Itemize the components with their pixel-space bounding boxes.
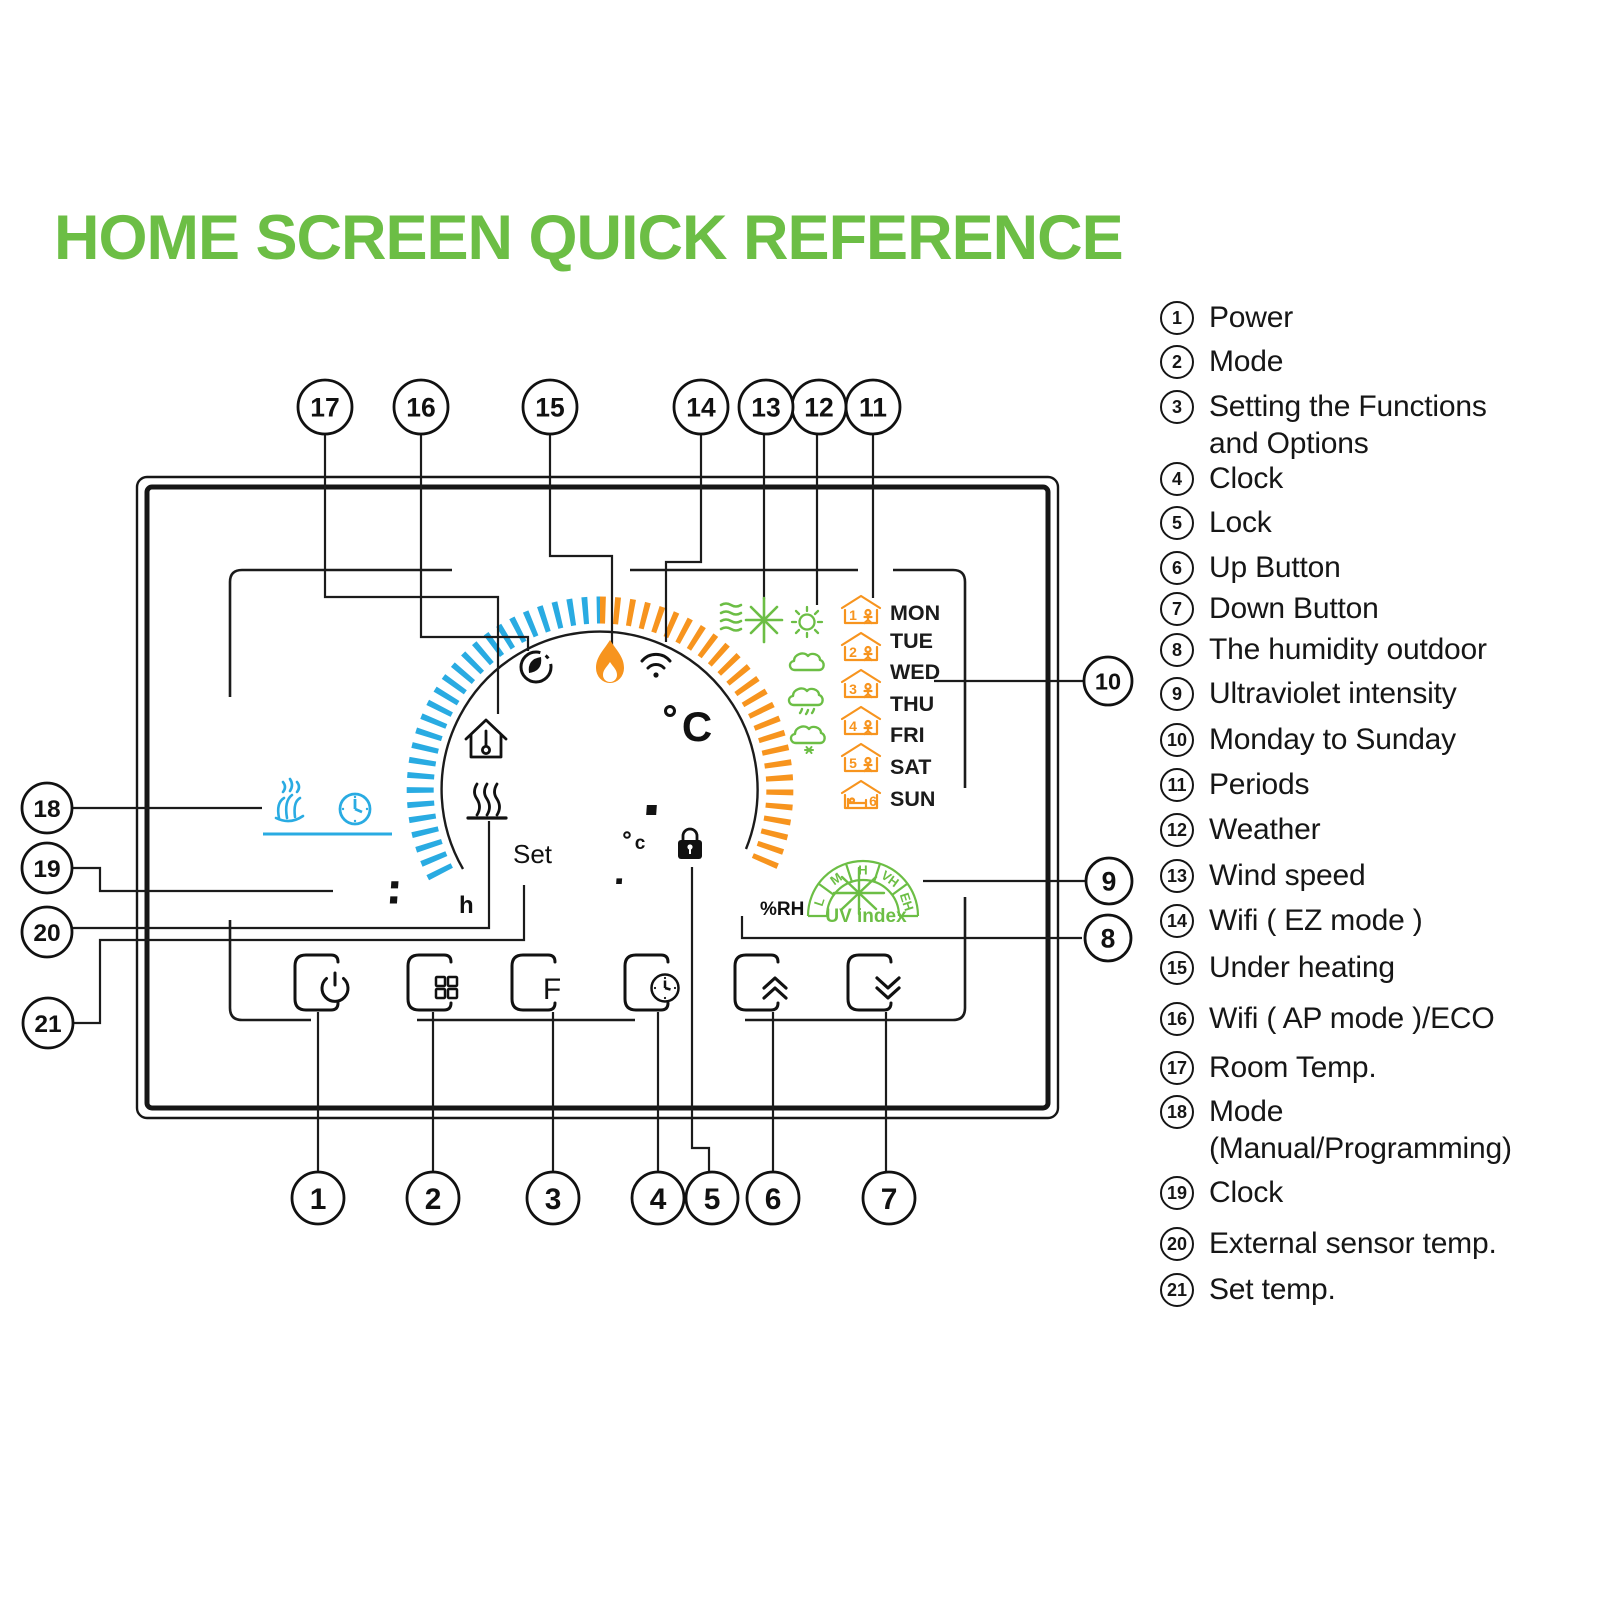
set-temp-fraction [616, 878, 622, 884]
mode-icon [436, 977, 457, 998]
period-house-icon-1: 1 [842, 596, 880, 623]
legend-item-19: 19Clock [1160, 1174, 1283, 1211]
svg-text:9: 9 [1102, 867, 1117, 897]
room-temp-unit: C [666, 703, 713, 750]
callout-8: 8 [1085, 915, 1131, 961]
svg-text:19: 19 [33, 856, 60, 883]
legend-item-12: 12Weather [1160, 811, 1320, 848]
wind-star [746, 598, 782, 642]
callout-4: 4 [632, 1172, 684, 1224]
day-label-TUE: TUE [890, 629, 933, 653]
uv-index-label: UV index [825, 906, 907, 927]
legend-item-9: 9Ultraviolet intensity [1160, 675, 1457, 712]
legend-item-7: 7Down Button [1160, 590, 1379, 627]
sun-icon [792, 607, 822, 637]
callout-9: 9 [1086, 858, 1132, 904]
svg-text:7: 7 [881, 1183, 898, 1216]
svg-text:4: 4 [650, 1183, 667, 1216]
callout-11: 11 [846, 380, 900, 434]
svg-text:5: 5 [704, 1183, 721, 1216]
weekday-labels: MONTUEWEDTHUFRISATSUN [890, 601, 940, 811]
callout-20: 20 [22, 907, 72, 957]
callout-15: 15 [523, 380, 577, 434]
svg-text:14: 14 [686, 393, 716, 423]
period-house-icon-4: 4 [842, 707, 880, 734]
legend-item-16: 16Wifi ( AP mode )/ECO [1160, 1000, 1495, 1037]
legend-item-17: 17Room Temp. [1160, 1049, 1377, 1086]
cloud-icon [790, 654, 824, 670]
rain-cloud-icon [789, 689, 823, 714]
lock-icon [678, 829, 702, 859]
callout-14: 14 [674, 380, 728, 434]
legend-item-2: 2Mode [1160, 343, 1283, 380]
svg-text:20: 20 [33, 920, 60, 947]
legend-item-11: 11Periods [1160, 766, 1309, 803]
heating-flame-icon [596, 640, 624, 683]
svg-text:C: C [682, 703, 712, 750]
manual-hand-icon [276, 779, 303, 821]
svg-text:16: 16 [406, 393, 435, 423]
day-label-MON: MON [890, 601, 940, 625]
legend-item-4: 4Clock [1160, 460, 1283, 497]
svg-text:6: 6 [869, 793, 877, 809]
svg-text:c: c [635, 833, 646, 854]
periods-icons: 123456 [842, 596, 880, 809]
clock-button-icon [652, 975, 679, 1002]
clock-unit: h [459, 892, 474, 919]
thermostat-diagram: 123456 MONTUEWEDTHUFRISATSUN LMHVHEH UV … [0, 0, 1601, 1601]
callout-1: 1 [292, 1172, 344, 1224]
function-icon: F [543, 973, 561, 1006]
down-icon [877, 978, 899, 998]
callout-16: 16 [394, 380, 448, 434]
floor-sensor-icon [468, 784, 506, 818]
svg-text:21: 21 [34, 1011, 61, 1038]
legend-item-20: 20External sensor temp. [1160, 1225, 1497, 1262]
callout-21: 21 [23, 998, 73, 1048]
legend-item-10: 10Monday to Sunday [1160, 721, 1456, 758]
period-house-icon-5: 5 [842, 744, 880, 771]
eco-wifi-ap-icon [521, 652, 551, 682]
callout-3: 3 [527, 1172, 579, 1224]
legend-item-3: 3Setting the Functions and Options [1160, 388, 1487, 462]
callout-12: 12 [792, 380, 846, 434]
svg-text:1: 1 [310, 1183, 327, 1216]
room-temp-fraction [646, 805, 657, 815]
svg-text:12: 12 [804, 393, 833, 423]
period-house-icon-2: 2 [842, 633, 880, 660]
callout-10: 10 [1084, 657, 1132, 705]
snow-cloud-icon [791, 727, 825, 753]
svg-text:2: 2 [849, 644, 857, 660]
callout-7: 7 [863, 1172, 915, 1224]
callout-13: 13 [739, 380, 793, 434]
svg-text:11: 11 [859, 393, 887, 423]
svg-text:1: 1 [849, 607, 857, 623]
callout-19: 19 [22, 843, 72, 893]
legend-item-18: 18Mode (Manual/Programming) [1160, 1093, 1512, 1167]
wifi-icon [642, 654, 670, 677]
svg-text:13: 13 [751, 393, 780, 423]
svg-text:17: 17 [310, 393, 339, 423]
day-label-THU: THU [890, 692, 934, 716]
day-label-SUN: SUN [890, 787, 935, 811]
humidity-unit: %RH [760, 899, 804, 920]
svg-text:4: 4 [849, 718, 857, 734]
svg-text:6: 6 [765, 1183, 782, 1216]
power-icon [322, 973, 348, 1001]
down-button[interactable] [848, 955, 891, 1010]
legend-item-14: 14Wifi ( EZ mode ) [1160, 902, 1422, 939]
period-house-icon-6: 6 [842, 781, 880, 809]
svg-text:3: 3 [849, 681, 857, 697]
svg-text:5: 5 [849, 755, 857, 771]
callout-17: 17 [298, 380, 352, 434]
legend-item-6: 6Up Button [1160, 549, 1341, 586]
legend-item-15: 15Under heating [1160, 949, 1395, 986]
svg-text:10: 10 [1095, 668, 1121, 694]
programming-clock-icon [340, 794, 370, 824]
day-label-SAT: SAT [890, 755, 931, 779]
legend-item-8: 8The humidity outdoor [1160, 631, 1487, 668]
clock-display [390, 881, 399, 903]
callout-6: 6 [747, 1172, 799, 1224]
up-icon [764, 978, 786, 998]
uv-level-VH: VH [878, 867, 901, 890]
svg-text:15: 15 [535, 393, 564, 423]
set-label: Set [513, 839, 553, 869]
wind-speed-icon [721, 598, 782, 642]
day-label-WED: WED [890, 660, 940, 684]
period-house-icon-3: 3 [842, 670, 880, 697]
temperature-arc [420, 610, 780, 874]
day-label-FRI: FRI [890, 723, 925, 747]
legend-item-21: 21Set temp. [1160, 1271, 1336, 1308]
legend-item-5: 5Lock [1160, 504, 1272, 541]
callout-2: 2 [407, 1172, 459, 1224]
svg-text:3: 3 [545, 1183, 562, 1216]
svg-text:2: 2 [425, 1183, 442, 1216]
legend-item-13: 13Wind speed [1160, 857, 1365, 894]
svg-text:8: 8 [1101, 924, 1116, 954]
callout-5: 5 [686, 1172, 738, 1224]
callout-18: 18 [22, 783, 72, 833]
uv-index-gauge: LMHVHEH UV index [808, 861, 918, 927]
legend-item-1: 1Power [1160, 299, 1293, 336]
room-temp-house-icon [466, 720, 506, 757]
svg-text:18: 18 [33, 796, 60, 823]
set-temp-unit: c [624, 832, 646, 854]
